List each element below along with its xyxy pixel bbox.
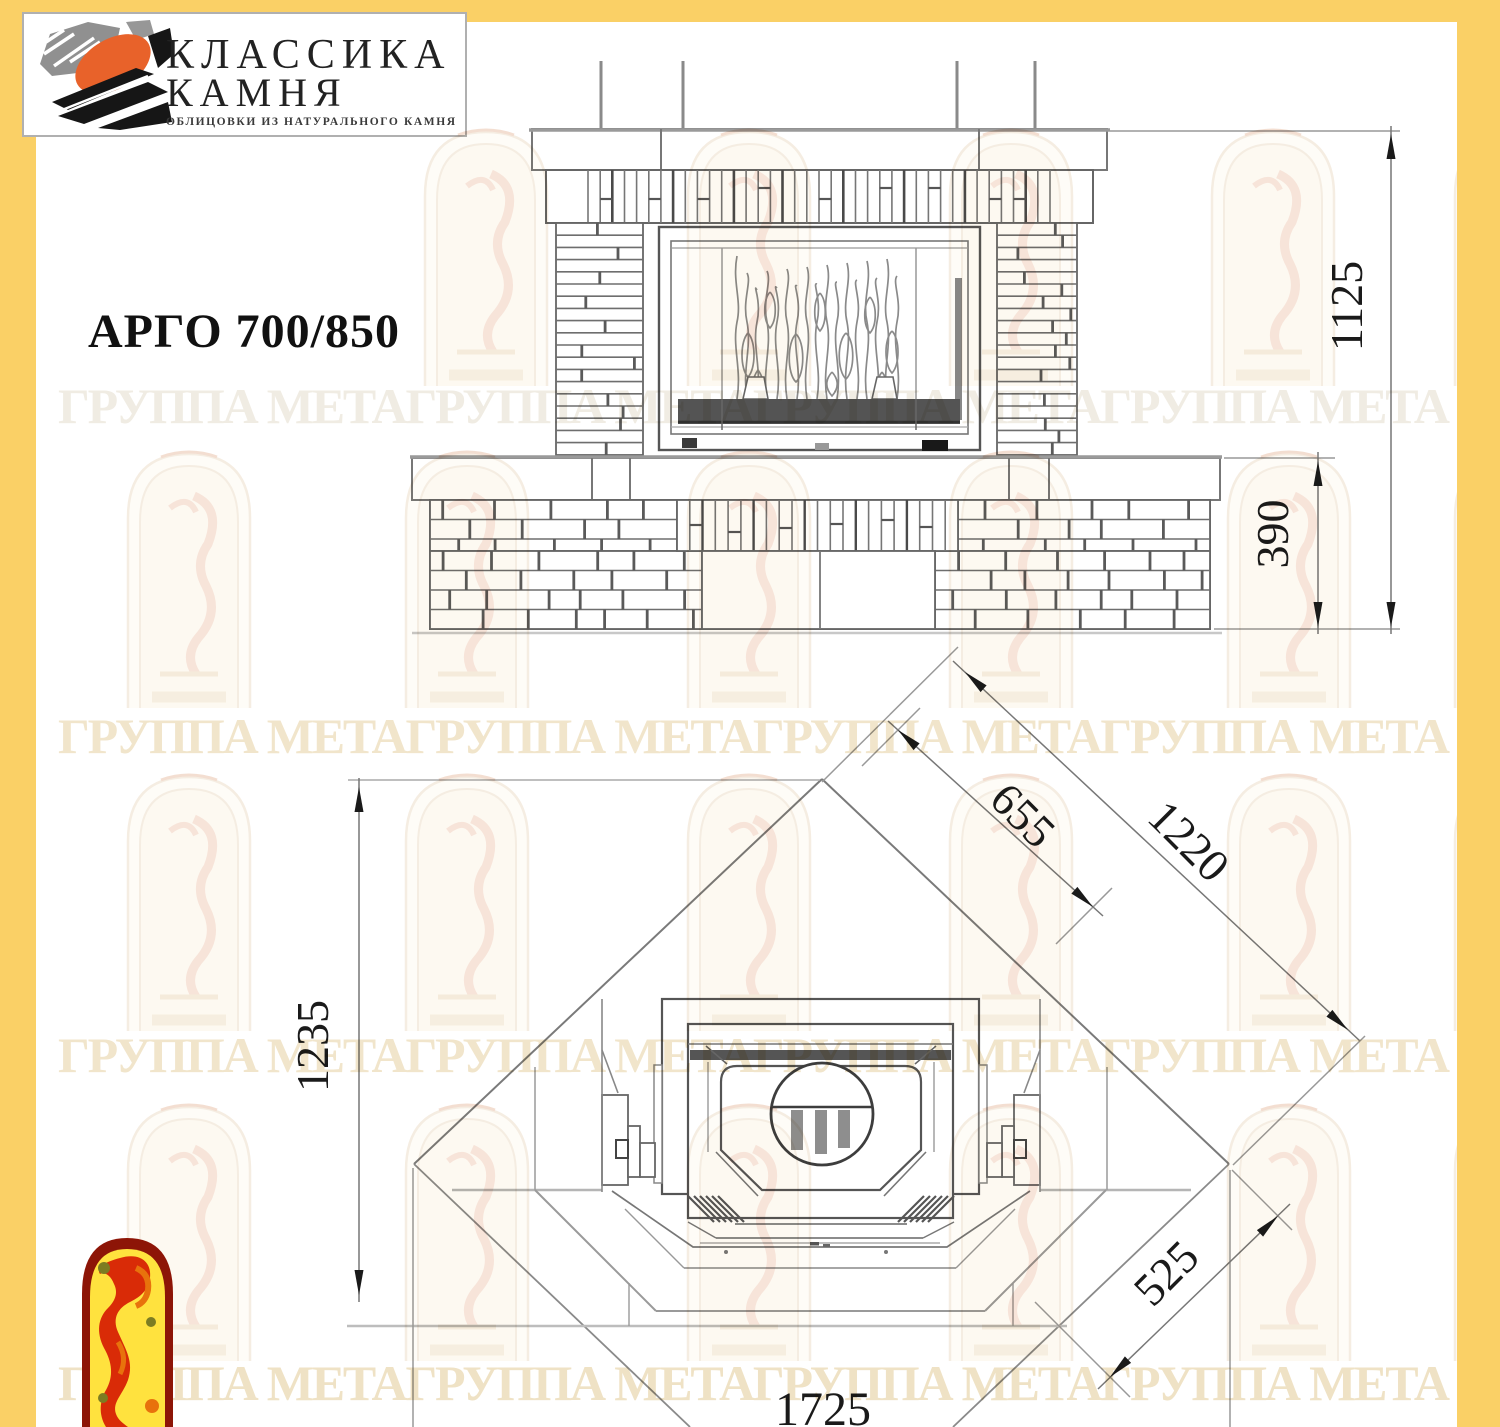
svg-text:ГРУППА МЕТАГРУППА МЕТАГРУППА М: ГРУППА МЕТАГРУППА МЕТАГРУППА МЕТАГРУППА … [58, 378, 1450, 434]
svg-text:ОБЛИЦОВКИ ИЗ НАТУРАЛЬНОГО КАМН: ОБЛИЦОВКИ ИЗ НАТУРАЛЬНОГО КАМНЯ [166, 116, 457, 128]
svg-text:АРГО 700/850: АРГО 700/850 [88, 305, 400, 358]
svg-text:ГРУППА МЕТАГРУППА МЕТАГРУППА М: ГРУППА МЕТАГРУППА МЕТАГРУППА МЕТАГРУППА … [58, 1027, 1450, 1083]
svg-text:КАМНЯ: КАМНЯ [166, 70, 348, 115]
svg-text:ГРУППА МЕТАГРУППА МЕТАГРУППА М: ГРУППА МЕТАГРУППА МЕТАГРУППА МЕТАГРУППА … [58, 708, 1450, 764]
svg-text:ГРУППА МЕТАГРУППА МЕТАГРУППА М: ГРУППА МЕТАГРУППА МЕТАГРУППА МЕТАГРУППА … [58, 1355, 1450, 1411]
